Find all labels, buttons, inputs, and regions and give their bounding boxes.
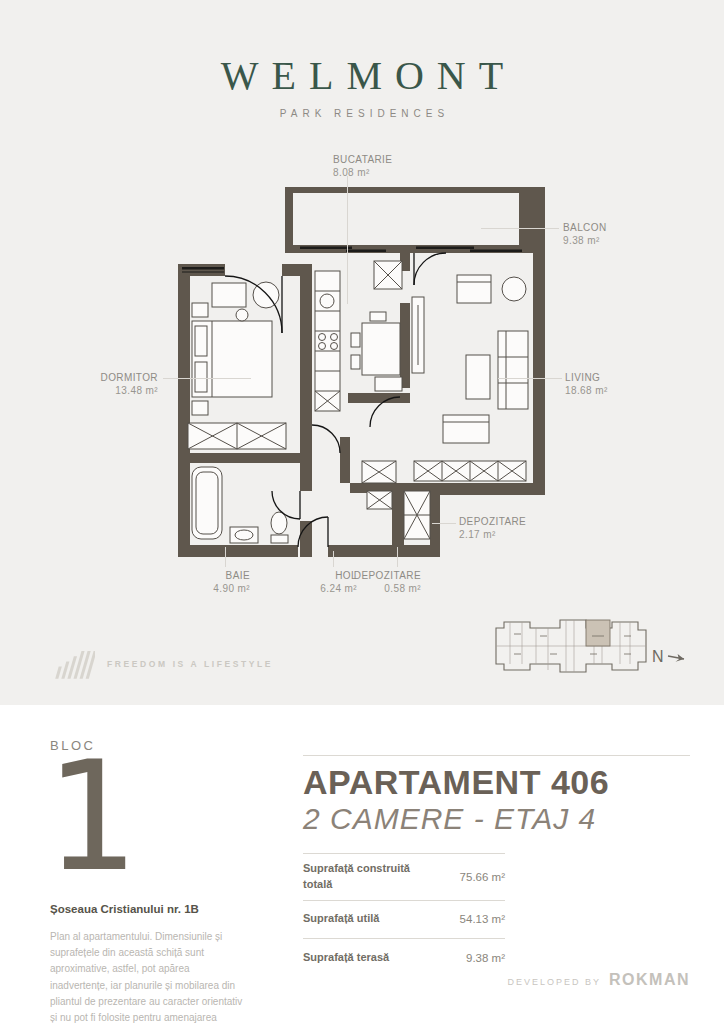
room-area: 8.08 m² xyxy=(333,166,392,179)
bedroom-furniture xyxy=(188,282,286,449)
surface-value: 75.66 m² xyxy=(460,871,505,883)
room-area: 13.48 m² xyxy=(58,384,158,397)
room-name: BAIE xyxy=(150,569,250,582)
minimap-svg xyxy=(490,606,652,684)
slogan: FREEDOM IS A LIFESTYLE xyxy=(55,648,273,680)
surface-label: Suprafață utilă xyxy=(303,911,421,927)
room-label-dormitor: DORMITOR 13.48 m² xyxy=(58,371,158,397)
brand-logo: WELMONT PARK RESIDENCES xyxy=(0,52,724,119)
surface-label: Suprafață terasă xyxy=(303,950,421,966)
surface-value: 9.38 m² xyxy=(466,952,505,964)
room-label-depozitare-mare: DEPOZITARE 2.17 m² xyxy=(459,515,526,541)
disclaimer: Plan al apartamentului. Dimensiunile și … xyxy=(50,929,250,1024)
plan-sheet: WELMONT PARK RESIDENCES xyxy=(0,0,724,705)
north-arrow-icon xyxy=(667,651,689,665)
leader-depozitare-mica xyxy=(397,547,398,567)
details-section: BLOC 1 Șoseaua Cristianului nr. 1B Plan … xyxy=(0,705,724,1024)
developed-by-label: DEVELOPED BY xyxy=(507,977,601,987)
floorplan-page: WELMONT PARK RESIDENCES xyxy=(0,0,724,1024)
room-name: LIVING xyxy=(565,371,608,384)
room-label-depozitare-mica: DEPOZITARE 0.58 m² xyxy=(331,569,421,595)
surface-label: Suprafață construită totală xyxy=(303,861,421,893)
surface-row: Suprafață utilă 54.13 m² xyxy=(303,901,505,939)
bathroom-furniture xyxy=(192,467,288,543)
floorplan-svg xyxy=(178,185,548,560)
leader-balcon xyxy=(481,228,559,229)
brand-tagline: PARK RESIDENCES xyxy=(0,108,724,119)
bars-logo-icon xyxy=(55,648,95,680)
minimap-highlighted-unit xyxy=(586,620,610,646)
leader-dormitor xyxy=(163,378,251,379)
room-label-balcon: BALCON 9.38 m² xyxy=(563,221,607,247)
room-area: 18.68 m² xyxy=(565,384,608,397)
room-area: 0.58 m² xyxy=(331,582,421,595)
apartment-subtitle: 2 CAMERE - ETAJ 4 xyxy=(303,802,596,836)
bloc-number: 1 xyxy=(44,741,136,893)
room-name: DEPOZITARE xyxy=(331,569,421,582)
room-name: BALCON xyxy=(563,221,607,234)
leader-depozitare-mare xyxy=(432,523,456,524)
brand-name: WELMONT xyxy=(0,52,724,99)
surface-value: 54.13 m² xyxy=(460,913,505,925)
floorplan xyxy=(178,185,548,560)
north-label: N xyxy=(652,648,665,665)
divider-rule xyxy=(303,755,690,756)
room-name: DORMITOR xyxy=(58,371,158,384)
slogan-text: FREEDOM IS A LIFESTYLE xyxy=(107,659,273,669)
developer-credit: DEVELOPED BY ROKMAN xyxy=(507,971,690,989)
room-label-bucatarie: BUCATARIE 8.08 m² xyxy=(333,153,392,179)
surface-table: Suprafață construită totală 75.66 m² Sup… xyxy=(303,853,505,977)
room-area: 9.38 m² xyxy=(563,234,607,247)
leader-living xyxy=(498,378,562,379)
apartment-title: APARTAMENT 406 xyxy=(303,763,609,802)
leader-bucatarie xyxy=(347,176,348,304)
room-area: 4.90 m² xyxy=(150,582,250,595)
room-name: DEPOZITARE xyxy=(459,515,526,528)
north-indicator: N xyxy=(652,648,689,666)
site-plan-minimap xyxy=(490,606,652,688)
developer-name: ROKMAN xyxy=(609,971,690,989)
room-name: BUCATARIE xyxy=(333,153,392,166)
room-label-living: LIVING 18.68 m² xyxy=(565,371,608,397)
windows xyxy=(182,247,522,273)
leader-hol xyxy=(333,551,334,567)
address: Șoseaua Cristianului nr. 1B xyxy=(50,903,199,915)
room-label-baie: BAIE 4.90 m² xyxy=(150,569,250,595)
leader-baie xyxy=(225,547,226,567)
surface-row: Suprafață terasă 9.38 m² xyxy=(303,939,505,977)
room-area: 2.17 m² xyxy=(459,528,526,541)
surface-row: Suprafață construită totală 75.66 m² xyxy=(303,854,505,901)
kitchen-furniture xyxy=(315,261,402,411)
